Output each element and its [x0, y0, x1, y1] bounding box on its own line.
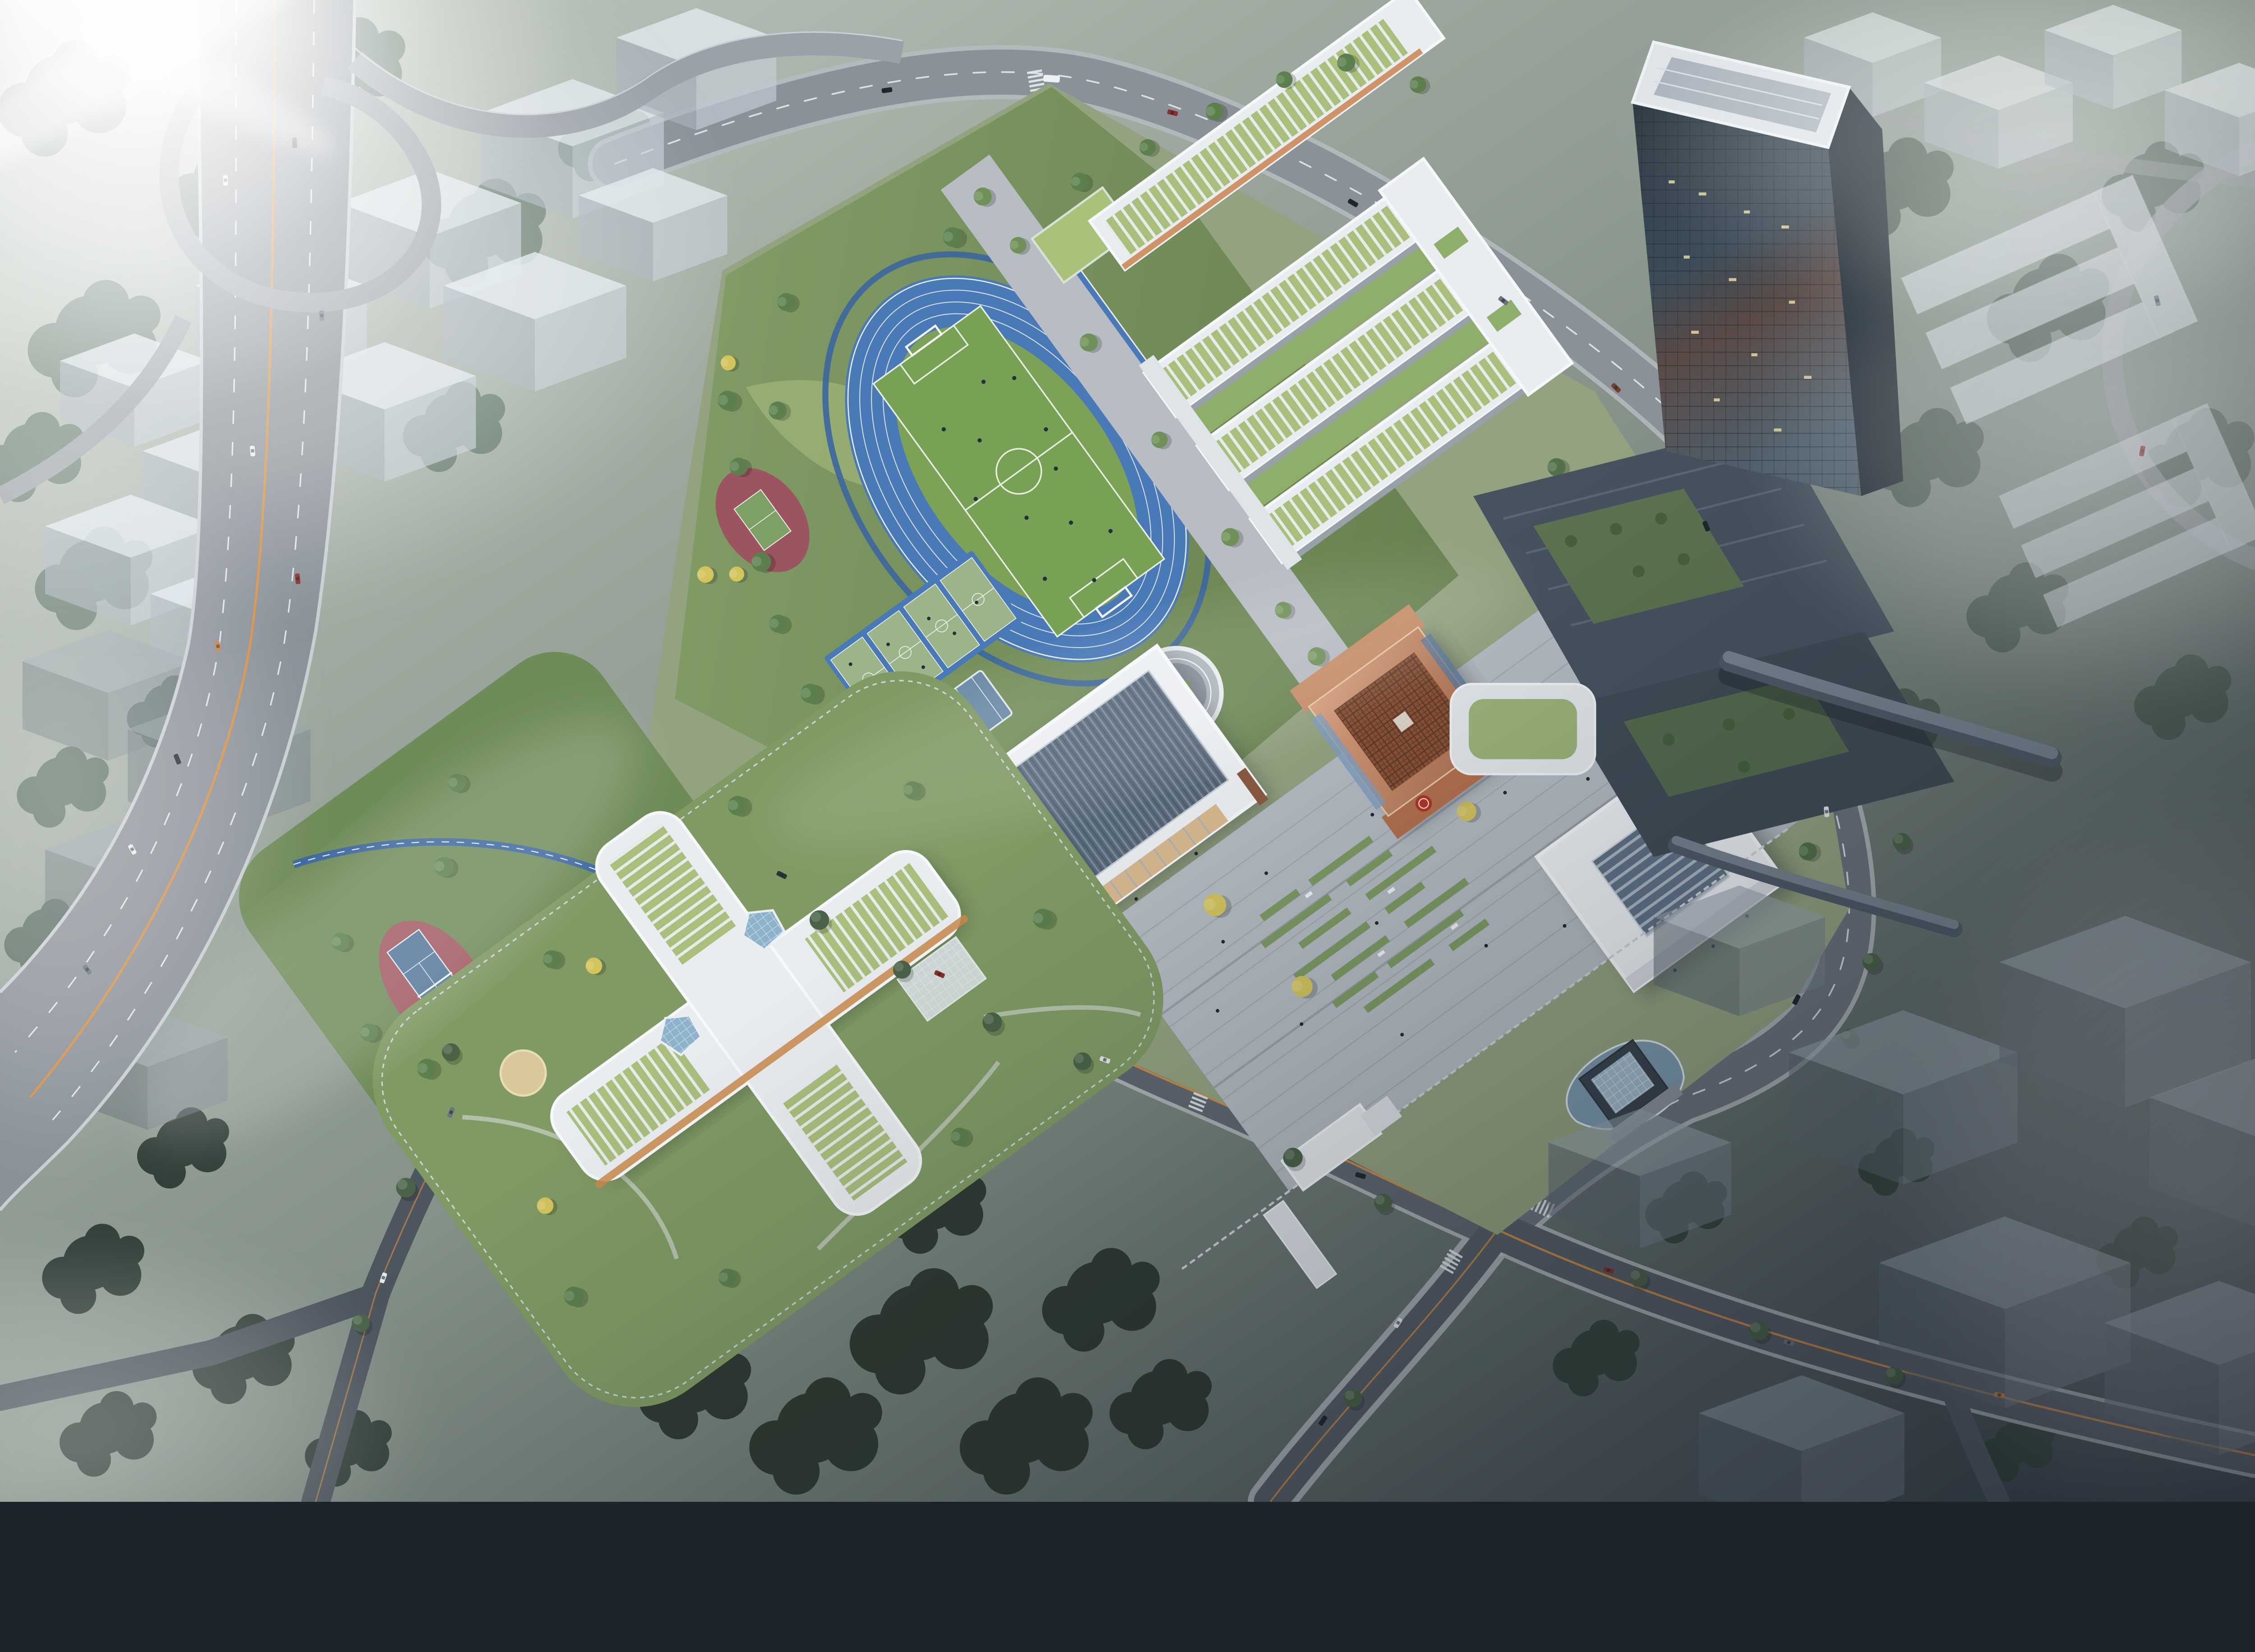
atmosphere [0, 0, 2255, 1502]
campus-aerial-rendering [0, 0, 2255, 1502]
rendering-stage [0, 0, 2255, 1502]
